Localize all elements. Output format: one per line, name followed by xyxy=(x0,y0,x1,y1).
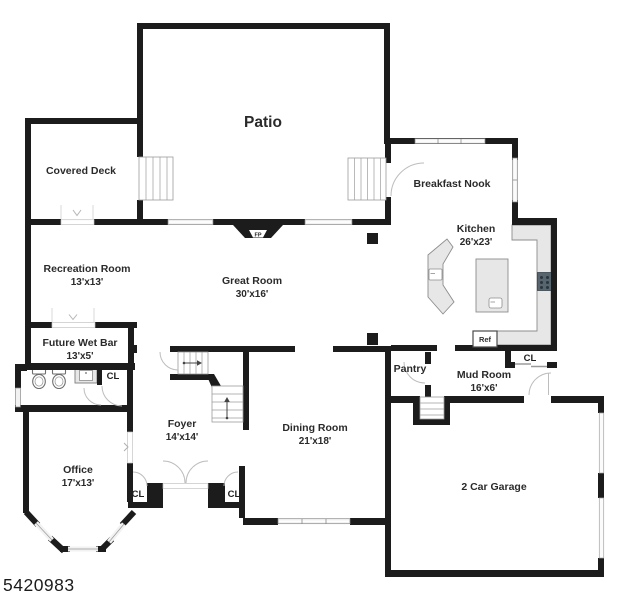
room-label-covered-deck: Covered Deck xyxy=(46,165,116,177)
patio-right-stairs xyxy=(348,158,386,200)
stair-closet-door xyxy=(160,352,178,370)
deck-door xyxy=(61,220,94,225)
garage-door xyxy=(599,413,603,473)
fireplace-label: FP xyxy=(254,233,261,239)
room-label-future-wet-bar: Future Wet Bar xyxy=(42,337,117,349)
foyer-closet-door xyxy=(133,472,147,486)
room-label-recreation-room: Recreation Room xyxy=(44,263,131,275)
office-opening xyxy=(128,432,133,463)
basement-stairs xyxy=(420,397,444,419)
island-sink-icon xyxy=(489,298,502,308)
structural-post xyxy=(367,333,378,345)
front-entry-door xyxy=(163,484,208,489)
refrigerator-label: Ref xyxy=(479,335,492,344)
room-label-mud-room: Mud Room xyxy=(457,369,511,381)
room-label-kitchen: Kitchen xyxy=(457,223,496,235)
toilet-icon xyxy=(53,368,66,389)
room-dims-future-wet-bar: 13'x5' xyxy=(66,351,93,362)
office-bay xyxy=(26,512,134,551)
floor-plan: FP xyxy=(0,0,628,600)
room-dims-foyer: 14'x14' xyxy=(166,432,199,443)
room-label-foyer: Foyer xyxy=(168,418,197,430)
bathroom-fixtures xyxy=(33,368,98,389)
room-label-dining-room: Dining Room xyxy=(282,422,347,434)
foyer-closet-door xyxy=(224,472,238,486)
closet-label: CL xyxy=(107,371,120,382)
closet-label: CL xyxy=(228,489,241,500)
interior-walls xyxy=(15,225,604,577)
peninsula-sink-icon xyxy=(429,269,442,280)
garage-door xyxy=(599,498,603,558)
entry-door-left xyxy=(163,461,185,483)
hall-closet-door xyxy=(102,386,122,406)
listing-id: 5420983 xyxy=(3,575,75,596)
room-label-patio: Patio xyxy=(244,114,282,131)
room-label-pantry: Pantry xyxy=(394,363,427,375)
room-label-garage: 2 Car Garage xyxy=(461,481,527,493)
entry-door-right xyxy=(186,461,208,483)
refrigerator-icon: Ref xyxy=(473,331,497,347)
fireplace: FP xyxy=(233,225,283,239)
vanity-sink-icon xyxy=(75,368,97,383)
room-label-breakfast-nook: Breakfast Nook xyxy=(413,178,490,190)
closet-label: CL xyxy=(132,489,145,500)
room-label-office: Office xyxy=(63,464,93,476)
room-dims-kitchen: 26'x23' xyxy=(460,237,493,248)
toilet-icon xyxy=(33,368,46,389)
bathroom-door xyxy=(84,388,101,405)
room-dims-great-room: 30'x16' xyxy=(236,289,269,300)
patio-deck-stairs xyxy=(139,157,173,200)
room-dims-recreation-room: 13'x13' xyxy=(71,277,104,288)
room-label-great-room: Great Room xyxy=(222,275,282,287)
room-dims-dining-room: 21'x18' xyxy=(299,436,332,447)
stove-icon xyxy=(538,273,552,291)
mud-room-garage-door xyxy=(529,373,551,395)
room-labels: Patio Covered Deck Breakfast Nook Kitche… xyxy=(42,114,536,500)
floor-plan-drawing: FP xyxy=(0,0,628,600)
foyer-staircase xyxy=(178,352,243,422)
closet-label: CL xyxy=(524,353,537,364)
structural-post xyxy=(367,233,378,244)
room-dims-office: 17'x13' xyxy=(62,478,95,489)
wet-bar-door xyxy=(52,323,95,328)
room-dims-mud-room: 16'x6' xyxy=(470,383,497,394)
